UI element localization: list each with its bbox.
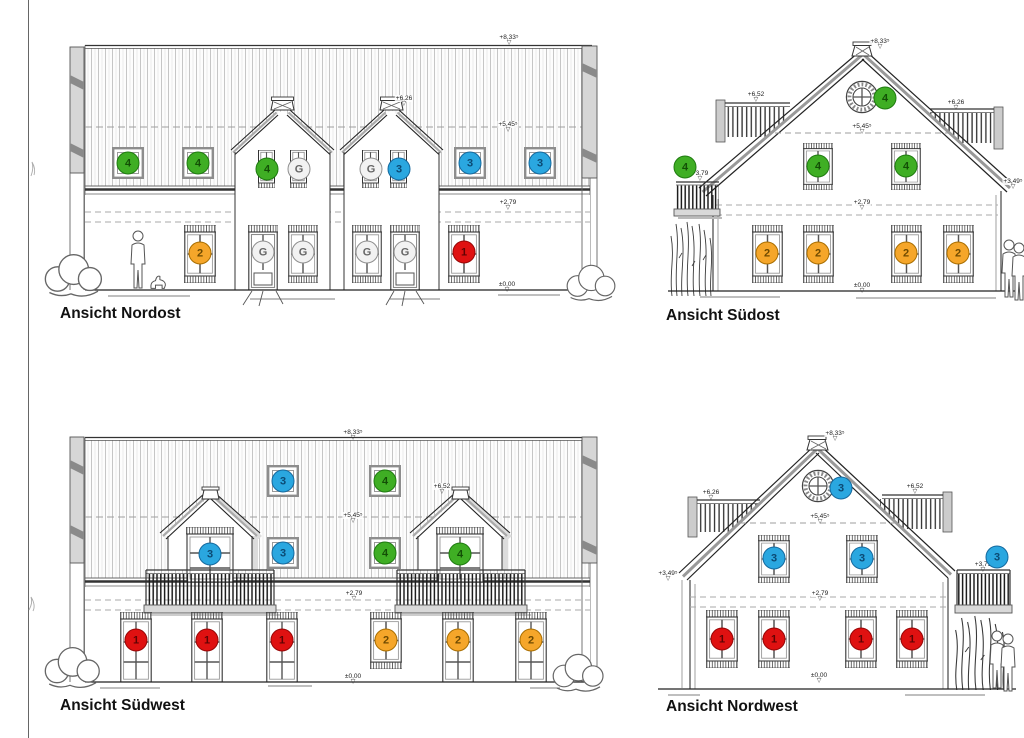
unit-marker-grey: G (292, 241, 315, 264)
unit-marker-green: 4 (256, 158, 279, 181)
unit-marker-red: 1 (901, 628, 924, 651)
dimension-marker: +8,33⁵▽ (824, 430, 845, 442)
dimension-marker: +8,33⁵▽ (869, 38, 890, 50)
dimension-marker: ±0,00▽ (810, 672, 828, 684)
dimension-marker: +6,52▽ (747, 91, 765, 103)
dimension-marker: +8,33⁵▽ (342, 429, 363, 441)
unit-marker-green: 4 (674, 156, 697, 179)
unit-marker-blue: 3 (830, 477, 853, 500)
unit-marker-green: 4 (117, 152, 140, 175)
unit-marker-red: 1 (271, 629, 294, 652)
unit-marker-orange: 2 (756, 242, 779, 265)
dimension-marker: +6,26▽ (702, 489, 720, 501)
dimension-marker: +2,79▽ (499, 199, 517, 211)
unit-marker-red: 1 (196, 629, 219, 652)
dimension-marker: +3,49⁵▽ (657, 570, 678, 582)
unit-marker-red: 1 (763, 628, 786, 651)
dimension-marker: ±0,00▽ (853, 282, 871, 294)
unit-marker-blue: 3 (272, 470, 295, 493)
unit-marker-blue: 3 (272, 542, 295, 565)
unit-marker-grey: G (252, 241, 275, 264)
unit-marker-orange: 2 (447, 629, 470, 652)
dimension-marker: ±0,00▽ (498, 281, 516, 293)
unit-marker-red: 1 (125, 629, 148, 652)
unit-marker-green: 4 (807, 155, 830, 178)
unit-marker-orange: 2 (947, 242, 970, 265)
dimension-marker: +3,49⁵▽ (1002, 178, 1023, 190)
unit-marker-blue: 3 (986, 546, 1009, 569)
dimension-marker: +6,26▽ (947, 99, 965, 111)
unit-marker-blue: 3 (851, 547, 874, 570)
unit-marker-grey: G (360, 158, 383, 181)
unit-marker-red: 1 (453, 241, 476, 264)
dimension-marker: +6,26▽ (395, 95, 413, 107)
dimension-marker: +6,52▽ (433, 483, 451, 495)
unit-marker-blue: 3 (199, 543, 222, 566)
unit-marker-red: 1 (711, 628, 734, 651)
dimension-marker: +5,45⁵▽ (342, 512, 363, 524)
unit-marker-green: 4 (895, 155, 918, 178)
drawing-sheet: Ansicht Nordost Ansicht Südost Ansicht S… (0, 0, 1024, 738)
unit-marker-orange: 2 (807, 242, 830, 265)
unit-marker-green: 4 (374, 470, 397, 493)
dimension-marker: +5,45⁵▽ (497, 121, 518, 133)
dimension-marker: +5,45⁵▽ (851, 123, 872, 135)
dimension-marker: +6,52▽ (906, 483, 924, 495)
dimension-marker: +2,79▽ (811, 590, 829, 602)
unit-marker-green: 4 (187, 152, 210, 175)
unit-marker-orange: 2 (375, 629, 398, 652)
dimension-marker: ±0,00▽ (344, 673, 362, 685)
unit-marker-grey: G (394, 241, 417, 264)
dimension-marker: +2,79▽ (853, 199, 871, 211)
dimension-marker: +8,33⁵▽ (498, 34, 519, 46)
annotation-layer: +8,33⁵▽+6,26▽+5,45⁵▽+2,79▽±0,00▽444GG333… (0, 0, 1024, 738)
unit-marker-grey: G (356, 241, 379, 264)
unit-marker-blue: 3 (388, 158, 411, 181)
unit-marker-blue: 3 (459, 152, 482, 175)
dimension-marker: +5,45⁵▽ (809, 513, 830, 525)
unit-marker-green: 4 (374, 542, 397, 565)
unit-marker-orange: 2 (189, 242, 212, 265)
unit-marker-green: 4 (874, 87, 897, 110)
unit-marker-blue: 3 (763, 547, 786, 570)
unit-marker-orange: 2 (895, 242, 918, 265)
unit-marker-orange: 2 (520, 629, 543, 652)
unit-marker-red: 1 (850, 628, 873, 651)
unit-marker-blue: 3 (529, 152, 552, 175)
unit-marker-green: 4 (449, 543, 472, 566)
unit-marker-grey: G (288, 158, 311, 181)
dimension-marker: +2,79▽ (345, 590, 363, 602)
